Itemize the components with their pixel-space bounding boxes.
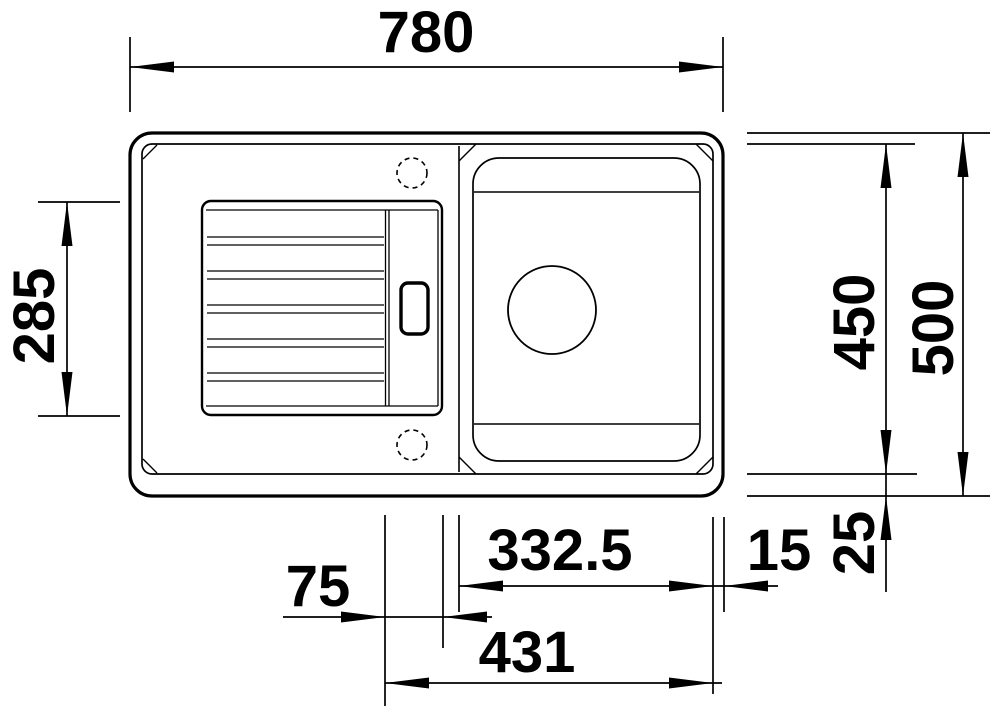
bowl-inner-slope bbox=[473, 158, 700, 461]
dim-25-label: 25 bbox=[822, 511, 887, 576]
sink-top-view bbox=[130, 133, 723, 496]
dim-332-5-arrow-right bbox=[669, 581, 713, 592]
dim-285-arrow-top bbox=[62, 202, 73, 246]
bowl-chamfer-bottom-left bbox=[459, 457, 476, 474]
bowl bbox=[459, 144, 713, 474]
dim-500-label: 500 bbox=[901, 280, 966, 377]
dim-15: 15 bbox=[713, 517, 811, 694]
dim-332-5: 332.5 bbox=[459, 515, 778, 612]
tap-hole-top bbox=[397, 158, 427, 188]
handle-recess bbox=[401, 283, 428, 334]
bowl-chamfer-top-left bbox=[459, 144, 476, 161]
dim-431-arrow-right bbox=[669, 678, 713, 689]
dim-780-label: 780 bbox=[378, 0, 475, 65]
dim-431-label: 431 bbox=[479, 620, 576, 685]
dim-450-arrow-top bbox=[881, 144, 892, 188]
dim-431-arrow-left bbox=[385, 678, 429, 689]
dim-285-label: 285 bbox=[2, 268, 67, 365]
dim-431: 431 bbox=[385, 620, 722, 689]
dim-285-arrow-bottom bbox=[62, 372, 73, 416]
dim-500-arrow-top bbox=[958, 133, 969, 177]
dim-285: 285 bbox=[2, 202, 120, 416]
dim-75-label: 75 bbox=[286, 554, 351, 619]
drainboard-frame bbox=[202, 201, 442, 415]
slide-strip bbox=[386, 210, 439, 406]
dim-450-label: 450 bbox=[822, 274, 887, 371]
sink-dimension-drawing: 780 285 450 500 25 332.5 bbox=[0, 0, 1000, 714]
drainboard-ribs bbox=[207, 237, 384, 381]
drain-hole bbox=[508, 266, 596, 354]
technical-drawing-svg: 780 285 450 500 25 332.5 bbox=[0, 0, 1000, 714]
dim-450-arrow-bottom bbox=[881, 430, 892, 474]
dim-500-arrow-bottom bbox=[958, 452, 969, 496]
dim-780: 780 bbox=[130, 0, 723, 112]
dim-780-arrow-right bbox=[679, 62, 723, 73]
dim-75: 75 bbox=[283, 515, 492, 706]
dim-450: 450 bbox=[747, 144, 917, 474]
dim-15-label: 15 bbox=[747, 518, 812, 583]
dim-332-5-label: 332.5 bbox=[487, 518, 632, 583]
dim-780-arrow-left bbox=[130, 62, 174, 73]
tap-hole-bottom bbox=[397, 430, 427, 460]
dim-25: 25 bbox=[822, 474, 892, 592]
drainboard bbox=[202, 201, 442, 415]
